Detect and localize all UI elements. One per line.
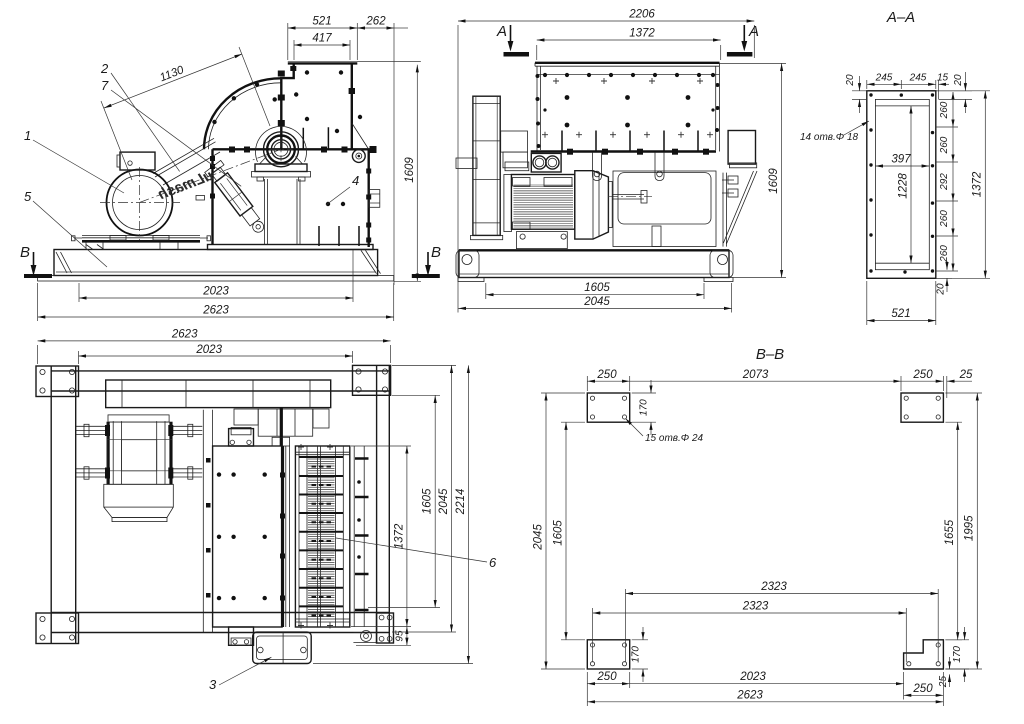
svg-text:521: 521 (891, 308, 910, 320)
svg-text:260: 260 (939, 210, 950, 228)
svg-text:250: 250 (912, 369, 933, 381)
svg-text:2045: 2045 (583, 296, 610, 308)
svg-text:2214: 2214 (455, 489, 467, 516)
svg-text:2623: 2623 (736, 689, 763, 701)
svg-text:B: B (20, 244, 30, 261)
svg-text:15 отв.Φ 24: 15 отв.Φ 24 (645, 433, 704, 444)
svg-text:2323: 2323 (760, 581, 787, 593)
svg-text:2023: 2023 (739, 671, 766, 683)
svg-text:170: 170 (952, 646, 963, 663)
svg-text:1605: 1605 (422, 488, 434, 514)
svg-text:2323: 2323 (742, 601, 769, 613)
svg-text:1372: 1372 (629, 28, 655, 40)
svg-text:245: 245 (909, 73, 927, 84)
svg-text:A: A (496, 23, 507, 40)
svg-text:15: 15 (937, 73, 949, 84)
svg-text:292: 292 (939, 173, 950, 191)
svg-text:1372: 1372 (972, 171, 984, 197)
svg-text:260: 260 (939, 136, 950, 154)
svg-text:B: B (431, 244, 441, 261)
svg-text:6: 6 (489, 555, 497, 570)
svg-text:2045: 2045 (532, 524, 544, 551)
svg-text:1995: 1995 (964, 515, 976, 541)
svg-text:2206: 2206 (628, 9, 655, 21)
svg-text:20: 20 (953, 74, 964, 87)
svg-text:2045: 2045 (438, 488, 450, 515)
svg-text:417: 417 (312, 33, 332, 45)
svg-text:1609: 1609 (404, 157, 416, 183)
svg-text:20: 20 (845, 74, 856, 87)
svg-text:1605: 1605 (552, 520, 564, 546)
svg-text:5: 5 (24, 189, 32, 204)
svg-text:2073: 2073 (742, 369, 769, 381)
svg-text:260: 260 (939, 101, 950, 119)
svg-text:14 отв.Φ 18: 14 отв.Φ 18 (800, 132, 859, 143)
svg-text:B–B: B–B (756, 346, 784, 363)
svg-text:7: 7 (101, 78, 109, 93)
svg-text:1655: 1655 (944, 519, 956, 545)
svg-text:4: 4 (352, 173, 359, 188)
svg-text:250: 250 (596, 671, 617, 683)
svg-text:1372: 1372 (393, 523, 405, 549)
svg-text:521: 521 (312, 16, 331, 28)
svg-text:260: 260 (939, 245, 950, 263)
svg-text:170: 170 (638, 399, 649, 416)
svg-text:245: 245 (875, 73, 893, 84)
svg-text:20: 20 (936, 283, 947, 296)
svg-text:2623: 2623 (202, 305, 229, 317)
svg-text:1605: 1605 (584, 282, 610, 294)
svg-text:1228: 1228 (898, 173, 910, 199)
svg-text:A–A: A–A (886, 9, 915, 26)
svg-text:250: 250 (912, 683, 933, 695)
svg-text:25: 25 (959, 369, 973, 381)
svg-text:397: 397 (891, 154, 911, 166)
svg-text:1: 1 (24, 128, 31, 143)
svg-text:262: 262 (365, 16, 386, 28)
svg-text:170: 170 (630, 646, 641, 663)
svg-text:2: 2 (100, 61, 109, 76)
svg-text:1609: 1609 (768, 168, 780, 194)
svg-text:2623: 2623 (171, 329, 198, 341)
svg-text:250: 250 (596, 369, 617, 381)
svg-text:2023: 2023 (202, 286, 229, 298)
svg-text:2023: 2023 (195, 344, 222, 356)
svg-text:A: A (748, 23, 759, 40)
svg-text:3: 3 (209, 677, 217, 692)
